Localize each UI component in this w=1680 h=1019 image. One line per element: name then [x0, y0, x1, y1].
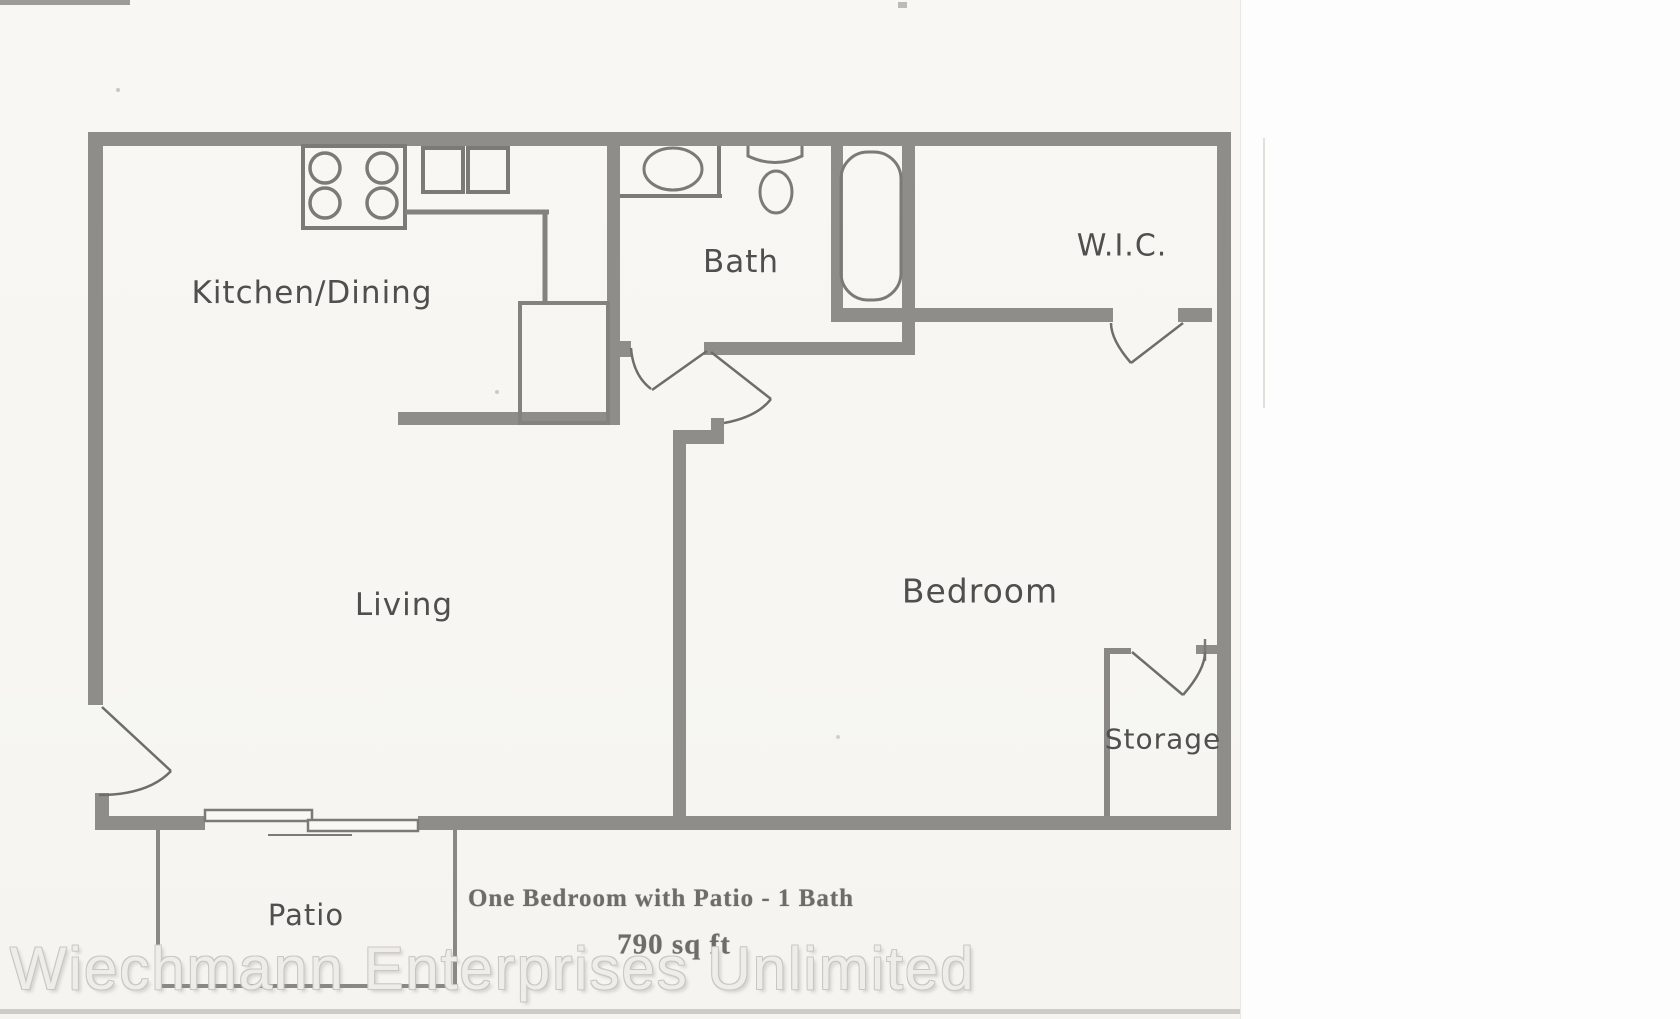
room-label-wic: W.I.C. [1077, 229, 1168, 264]
sliding-door-icon [205, 810, 418, 835]
wall-wic-south [902, 308, 1113, 322]
room-label-patio: Patio [268, 898, 344, 932]
storage-door-icon [1132, 652, 1205, 695]
room-label-bath: Bath [703, 244, 779, 280]
room-label-kitchen-dining: Kitchen/Dining [191, 275, 432, 311]
pantry-box [520, 303, 608, 423]
wall-bath-south [704, 342, 902, 355]
wall-bottom-right-segment [418, 816, 1231, 830]
plan-caption-title: One Bedroom with Patio - 1 Bath [468, 885, 854, 913]
wic-door-jamb-right [1178, 308, 1212, 322]
room-label-living: Living [355, 587, 453, 623]
floor-plan-drawing [0, 0, 1680, 1019]
vanity-sink-icon [620, 146, 722, 196]
bath-door-icon [631, 348, 707, 390]
toilet-icon [748, 146, 802, 213]
scan-artifacts [0, 0, 1265, 1014]
wall-left [88, 132, 103, 705]
wall-top [88, 132, 1231, 146]
wall-bottom-left-corner [95, 793, 109, 823]
wall-bedroom-north [673, 430, 712, 444]
entry-door-icon [99, 707, 171, 795]
exterior-walls [88, 132, 1231, 830]
wall-bottom-left-segment [95, 816, 205, 830]
wall-tub-bottom [831, 308, 909, 322]
wic-door-icon [1111, 323, 1183, 363]
wall-bedroom-west [673, 430, 686, 830]
bedroom-door-jamb [711, 418, 724, 444]
room-label-bedroom: Bedroom [902, 572, 1058, 611]
bathtub-icon [841, 152, 901, 300]
watermark-text: Wiechmann Enterprises Unlimited [10, 934, 976, 1003]
stove-icon [303, 146, 405, 228]
storage-wall-stub [1196, 645, 1217, 654]
bedroom-door-icon [711, 352, 771, 423]
room-label-storage: Storage [1105, 723, 1222, 756]
double-sink-icon [423, 148, 508, 192]
bath-door-jamb-left [619, 341, 631, 357]
floor-plan-scan: Kitchen/Dining Bath W.I.C. Living Bedroo… [0, 0, 1680, 1019]
